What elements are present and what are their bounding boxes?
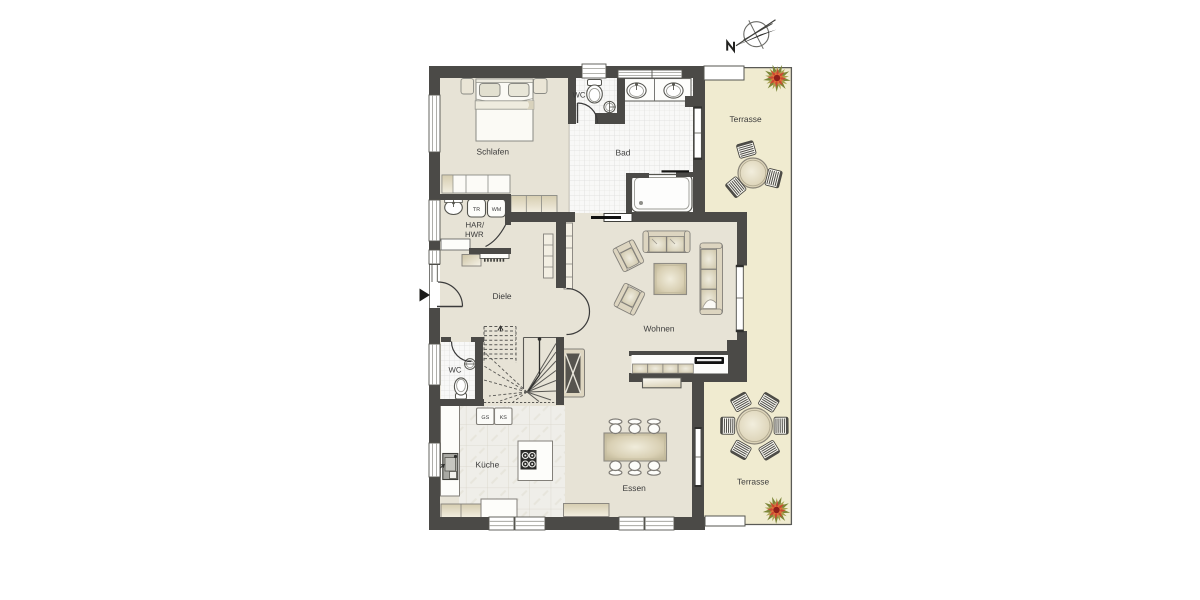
svg-text:WC: WC (449, 366, 462, 375)
svg-text:HAR/: HAR/ (466, 221, 485, 230)
svg-text:WM: WM (492, 207, 502, 213)
svg-text:Küche: Küche (476, 460, 500, 470)
svg-text:Schlafen: Schlafen (477, 147, 510, 157)
svg-text:TR: TR (473, 207, 480, 213)
svg-text:KS: KS (500, 415, 508, 421)
svg-text:Bad: Bad (616, 148, 631, 158)
svg-text:Wohnen: Wohnen (644, 324, 675, 334)
svg-text:Diele: Diele (493, 291, 512, 301)
svg-text:Essen: Essen (623, 483, 647, 493)
svg-text:HWR: HWR (465, 230, 484, 239)
svg-text:Terrasse: Terrasse (730, 114, 762, 124)
svg-text:Terrasse: Terrasse (737, 477, 769, 487)
svg-text:GS: GS (481, 415, 489, 421)
svg-text:WC: WC (573, 91, 586, 100)
